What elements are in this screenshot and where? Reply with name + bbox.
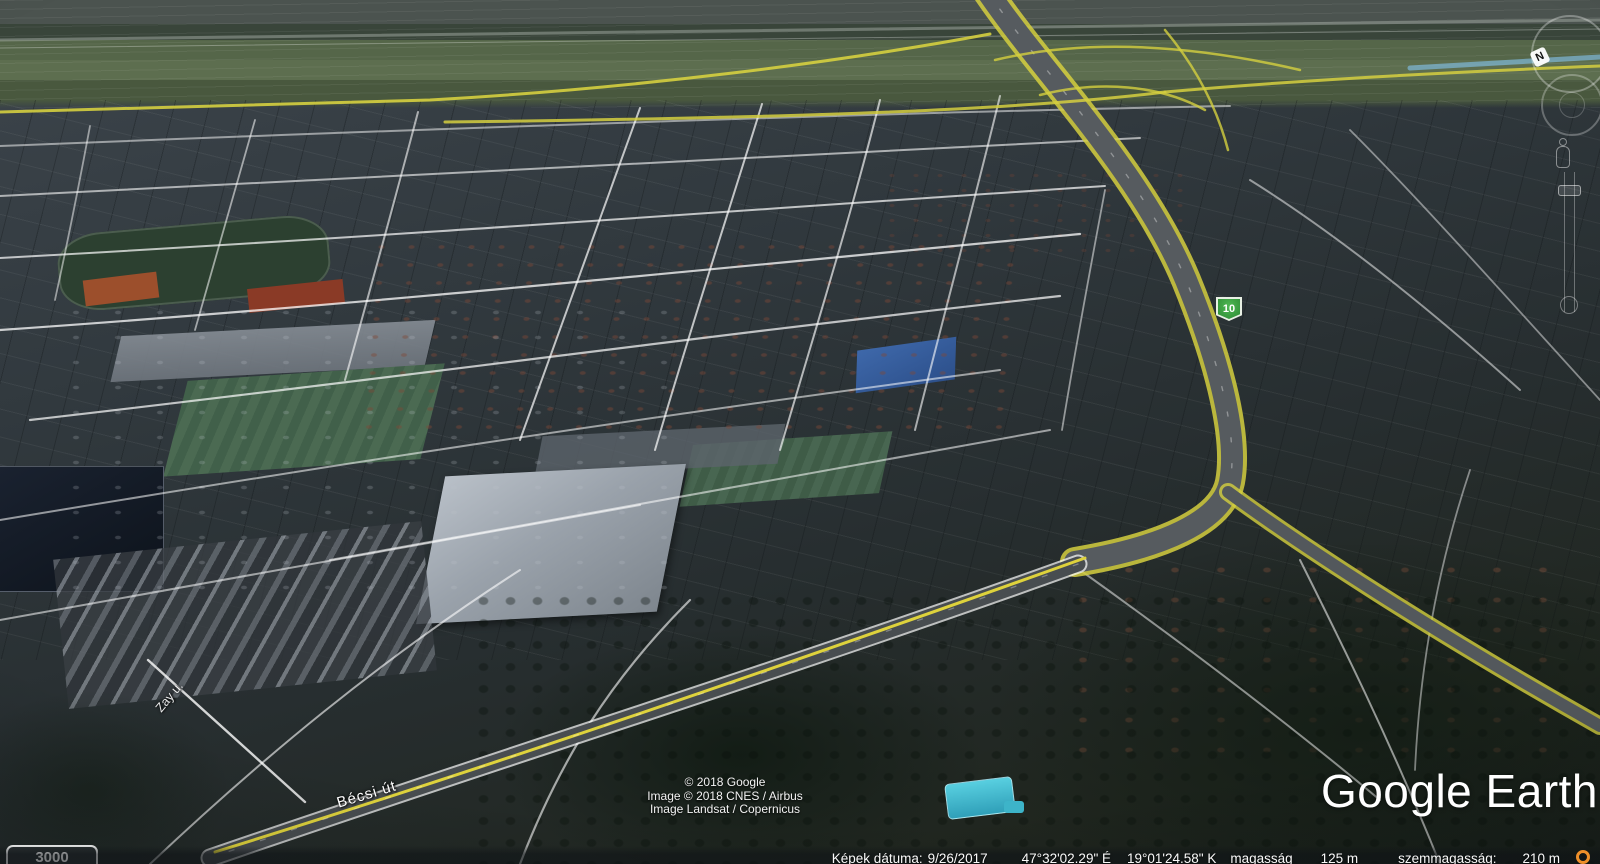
status-bar: Képek dátuma: 9/26/2017 47°32'02.29" É 1… xyxy=(0,846,1600,864)
zoom-slider-handle[interactable] xyxy=(1558,185,1581,196)
attribution-line: © 2018 Google xyxy=(540,776,910,790)
elevation-value: 125 m xyxy=(1321,846,1359,864)
road-shield-number: 10 xyxy=(1218,299,1240,319)
attribution-line: Image © 2018 CNES / Airbus xyxy=(540,790,910,804)
roads-overlay xyxy=(0,0,1600,864)
eye-altitude-label: szemmagasság: xyxy=(1398,846,1496,864)
zoom-out-button[interactable] xyxy=(1560,296,1578,314)
move-joystick-center[interactable] xyxy=(1559,92,1585,118)
longitude-value: 19°01'24.58" K xyxy=(1127,846,1216,864)
imagery-date-label: Képek dátuma: xyxy=(832,846,923,864)
streaming-progress-icon xyxy=(1576,850,1590,864)
swimming-pool xyxy=(1004,801,1024,813)
latitude-value: 47°32'02.29" É xyxy=(1022,846,1111,864)
google-earth-logo: Google Earth xyxy=(1321,764,1598,818)
pegman-icon[interactable] xyxy=(1556,146,1570,168)
imagery-date: 9/26/2017 xyxy=(928,846,988,864)
attribution: © 2018 Google Image © 2018 CNES / Airbus… xyxy=(540,776,910,817)
pegman-icon[interactable] xyxy=(1559,138,1567,146)
earth-viewport[interactable]: Bécsi út Zay u. 10 3000 © 2018 Google Im… xyxy=(0,0,1600,864)
attribution-line: Image Landsat / Copernicus xyxy=(540,803,910,817)
eye-altitude-value: 210 m xyxy=(1522,846,1560,864)
elevation-label: magasság xyxy=(1230,846,1292,864)
